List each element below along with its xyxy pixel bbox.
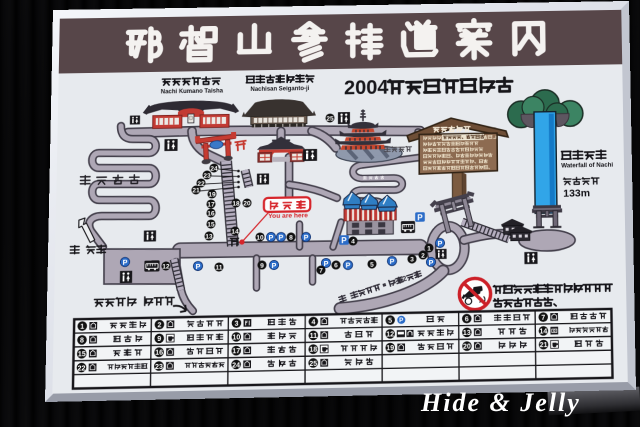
svg-text:2004: 2004 [344,77,388,100]
svg-text:P: P [196,264,201,271]
svg-text:17: 17 [207,201,215,208]
svg-text:23: 23 [203,172,211,179]
svg-text:23: 23 [155,364,163,371]
svg-text:25: 25 [309,361,317,368]
svg-text:12: 12 [162,263,170,270]
svg-text:21: 21 [192,187,200,194]
svg-text:14: 14 [231,228,239,235]
svg-text:9: 9 [260,262,264,269]
svg-text:3: 3 [410,256,414,263]
svg-text:25: 25 [326,116,334,123]
svg-text:P: P [417,213,423,222]
svg-text:16: 16 [207,210,215,217]
svg-text:P: P [123,260,128,267]
svg-text:P: P [279,235,284,242]
svg-text:3: 3 [234,321,238,328]
svg-text:P: P [438,241,443,248]
svg-text:P: P [269,235,274,242]
svg-text:19: 19 [386,345,394,352]
svg-text:P: P [341,236,347,245]
svg-text:You are here: You are here [268,212,308,220]
svg-text:4: 4 [351,239,355,246]
svg-text:P: P [429,260,434,267]
svg-text:13: 13 [205,233,213,240]
svg-text:1: 1 [427,246,431,253]
svg-text:Waterfall of Nachi: Waterfall of Nachi [561,161,613,169]
svg-text:21: 21 [540,342,548,349]
svg-text:8: 8 [80,337,84,344]
svg-text:17: 17 [232,348,240,355]
svg-text:P: P [324,261,329,268]
svg-text:10: 10 [256,234,264,241]
svg-text:19: 19 [208,191,216,198]
svg-text:5: 5 [388,318,392,325]
svg-text:16: 16 [155,350,163,357]
svg-text:1: 1 [80,324,84,331]
svg-text:20: 20 [463,344,471,351]
svg-text:Nachisan Seiganto-ji: Nachisan Seiganto-ji [250,86,309,93]
svg-text:10: 10 [232,334,240,341]
svg-text:2: 2 [157,322,161,329]
svg-text:13: 13 [463,330,471,337]
svg-text:7: 7 [319,267,323,274]
svg-text:18: 18 [309,347,317,354]
svg-text:4: 4 [311,319,315,326]
svg-text:2: 2 [421,252,425,259]
svg-text:133m: 133m [563,188,590,200]
svg-text:11: 11 [215,264,222,271]
svg-text:P: P [272,263,277,270]
svg-text:P: P [304,235,309,242]
svg-text:18: 18 [232,200,240,207]
svg-text:9: 9 [157,336,161,343]
svg-text:22: 22 [197,180,205,187]
svg-text:24: 24 [232,362,240,369]
svg-text:20: 20 [243,200,251,207]
svg-text:11: 11 [310,333,318,340]
svg-text:15: 15 [78,351,86,358]
svg-text:14: 14 [539,328,547,335]
svg-text:6: 6 [334,262,338,269]
svg-text:P: P [390,259,395,266]
svg-text:22: 22 [77,365,85,372]
svg-text:6: 6 [465,316,469,323]
svg-text:P: P [399,317,403,324]
svg-text:15: 15 [207,221,215,228]
svg-text:5: 5 [370,261,374,268]
svg-text:Nachi Kumano Taisha: Nachi Kumano Taisha [161,88,224,95]
svg-text:12: 12 [386,331,394,338]
svg-text:P: P [346,263,351,270]
svg-text:24: 24 [210,165,218,172]
svg-text:7: 7 [541,315,545,322]
svg-text:8: 8 [289,235,293,242]
